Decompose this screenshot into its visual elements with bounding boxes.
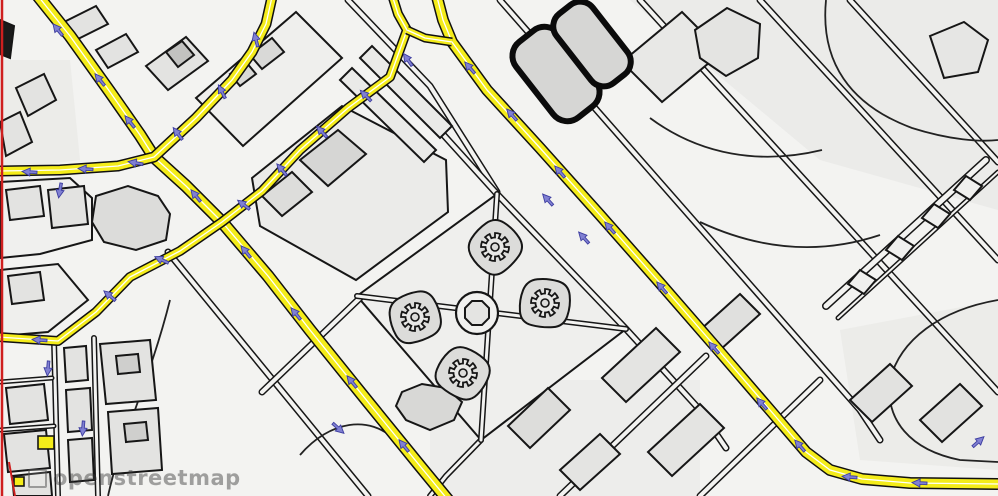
building (116, 354, 140, 374)
map-canvas[interactable] (0, 0, 998, 496)
flowerbed-center (411, 313, 419, 321)
flowerbed-center (459, 369, 467, 377)
building (124, 422, 148, 442)
building (64, 346, 88, 382)
map-viewport[interactable]: openstreetmap (0, 0, 998, 496)
garden-fountain-basin (465, 301, 489, 325)
flowerbed-center (541, 299, 549, 307)
yellow-landmark (38, 436, 54, 449)
building (6, 384, 48, 424)
building (66, 388, 92, 432)
building (68, 438, 94, 482)
building (48, 186, 88, 228)
building (92, 186, 170, 250)
flowerbed-center (491, 243, 499, 251)
yellow-landmark (14, 477, 24, 486)
building (6, 186, 44, 220)
building (8, 272, 44, 304)
